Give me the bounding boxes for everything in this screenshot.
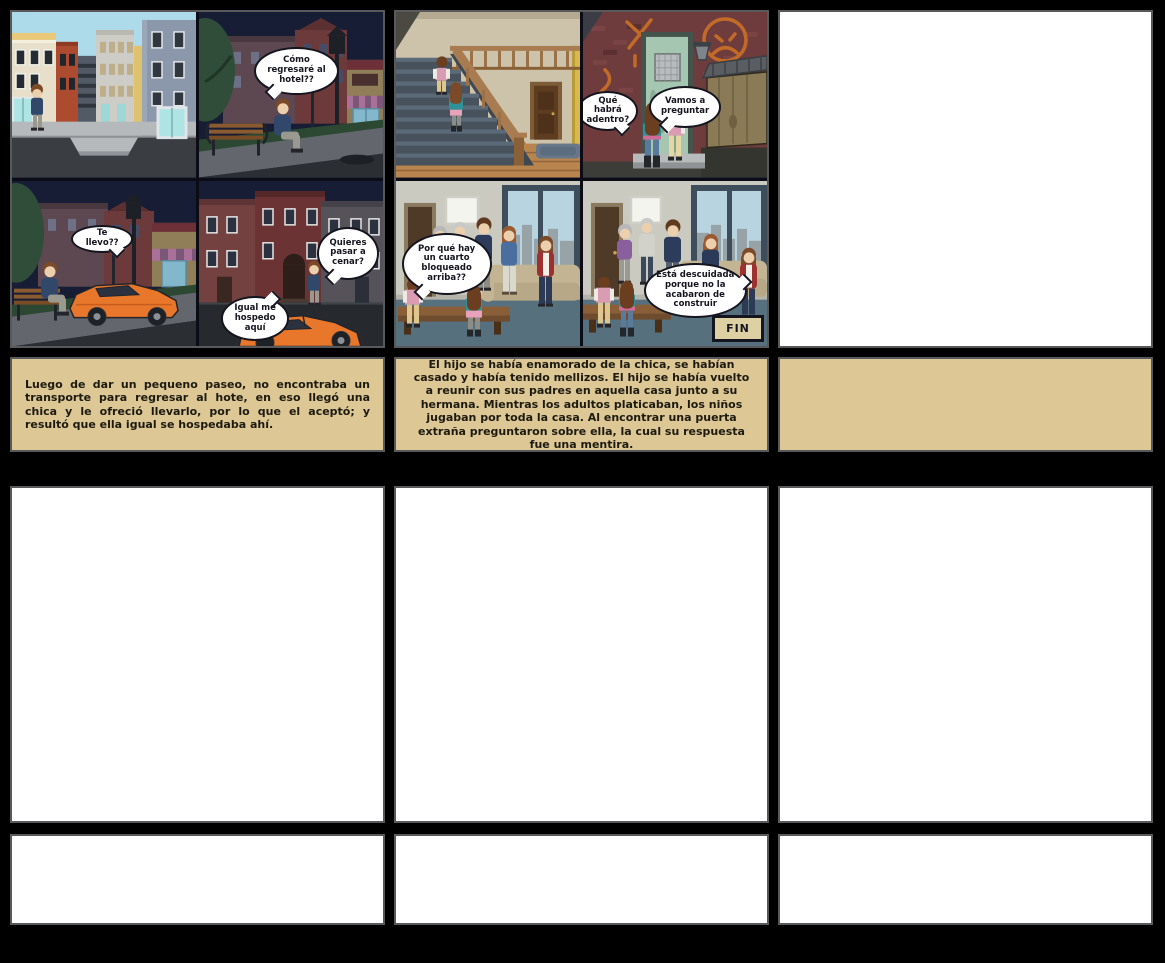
caption-box-6-empty[interactable] <box>778 834 1153 925</box>
speech-bubble: Cómo regresaré al hotel?? <box>254 47 339 95</box>
speech-bubble-text: Quieres pasar a cenar? <box>326 239 371 268</box>
storyboard-cell-4-empty[interactable] <box>10 486 385 823</box>
caption-box-2[interactable]: El hijo se había enamorado de la chica, … <box>394 357 769 452</box>
panel-night-bench: Cómo regresaré al hotel?? <box>199 12 383 178</box>
interior-staircase-art <box>396 12 580 178</box>
storyboard-cell-3-empty[interactable] <box>778 10 1153 348</box>
storyboard-cell-6-empty[interactable] <box>778 486 1153 823</box>
speech-bubble: Por qué hay un cuarto bloqueado arriba?? <box>402 233 492 294</box>
speech-bubble: Está descuidada porque no la acabaron de… <box>644 263 747 318</box>
panel-interior-staircase <box>396 12 580 178</box>
speech-bubble-text: Qué habrá adentro? <box>586 97 629 126</box>
speech-bubble-text: Está descuidada porque no la acabaron de… <box>653 271 738 310</box>
speech-bubble: Quieres pasar a cenar? <box>317 227 380 280</box>
speech-bubble-text: Por qué hay un cuarto bloqueado arriba?? <box>411 245 483 284</box>
fin-label: FIN <box>726 322 750 335</box>
caption-box-5-empty[interactable] <box>394 834 769 925</box>
night-bench-art <box>199 12 383 178</box>
speech-bubble-text: Igual me hospedo aquí <box>230 304 280 333</box>
caption-text-2: El hijo se había enamorado de la chica, … <box>409 358 754 452</box>
panel-living-room-end: Está descuidada porque no la acabaron de… <box>583 181 767 347</box>
storyboard-cell-5-empty[interactable] <box>394 486 769 823</box>
speech-bubble-text: Te llevo?? <box>80 229 125 249</box>
fin-box: FIN <box>712 315 764 342</box>
speech-bubble: Vamos a preguntar <box>649 86 721 127</box>
caption-text-1: Luego de dar un pequeno paseo, no encont… <box>25 378 370 432</box>
speech-bubble: Te llevo?? <box>71 225 134 253</box>
panel-living-room-group: Por qué hay un cuarto bloqueado arriba?? <box>396 181 580 347</box>
panel-city-street-day <box>12 12 196 178</box>
caption-box-1[interactable]: Luego de dar un pequeno paseo, no encont… <box>10 357 385 452</box>
night-bench-car-art <box>12 181 196 347</box>
panel-night-brick-street: Quieres pasar a cenar? Igual me hospedo … <box>199 181 383 347</box>
city-street-day-art <box>12 12 196 178</box>
speech-bubble-text: Cómo regresaré al hotel?? <box>263 56 330 85</box>
panel-night-bench-car: Te llevo?? <box>12 181 196 347</box>
speech-bubble-text: Vamos a preguntar <box>658 97 712 117</box>
caption-box-4-empty[interactable] <box>10 834 385 925</box>
storyboard-cell-1[interactable]: Cómo regresaré al hotel?? <box>10 10 385 348</box>
storyboard-cell-2[interactable]: Qué habrá adentro? Vamos a preguntar <box>394 10 769 348</box>
storyboard-page: Cómo regresaré al hotel?? <box>0 0 1165 963</box>
caption-box-3-empty[interactable] <box>778 357 1153 452</box>
panel-graffiti-door: Qué habrá adentro? Vamos a preguntar <box>583 12 767 178</box>
speech-bubble: Igual me hospedo aquí <box>221 296 289 341</box>
